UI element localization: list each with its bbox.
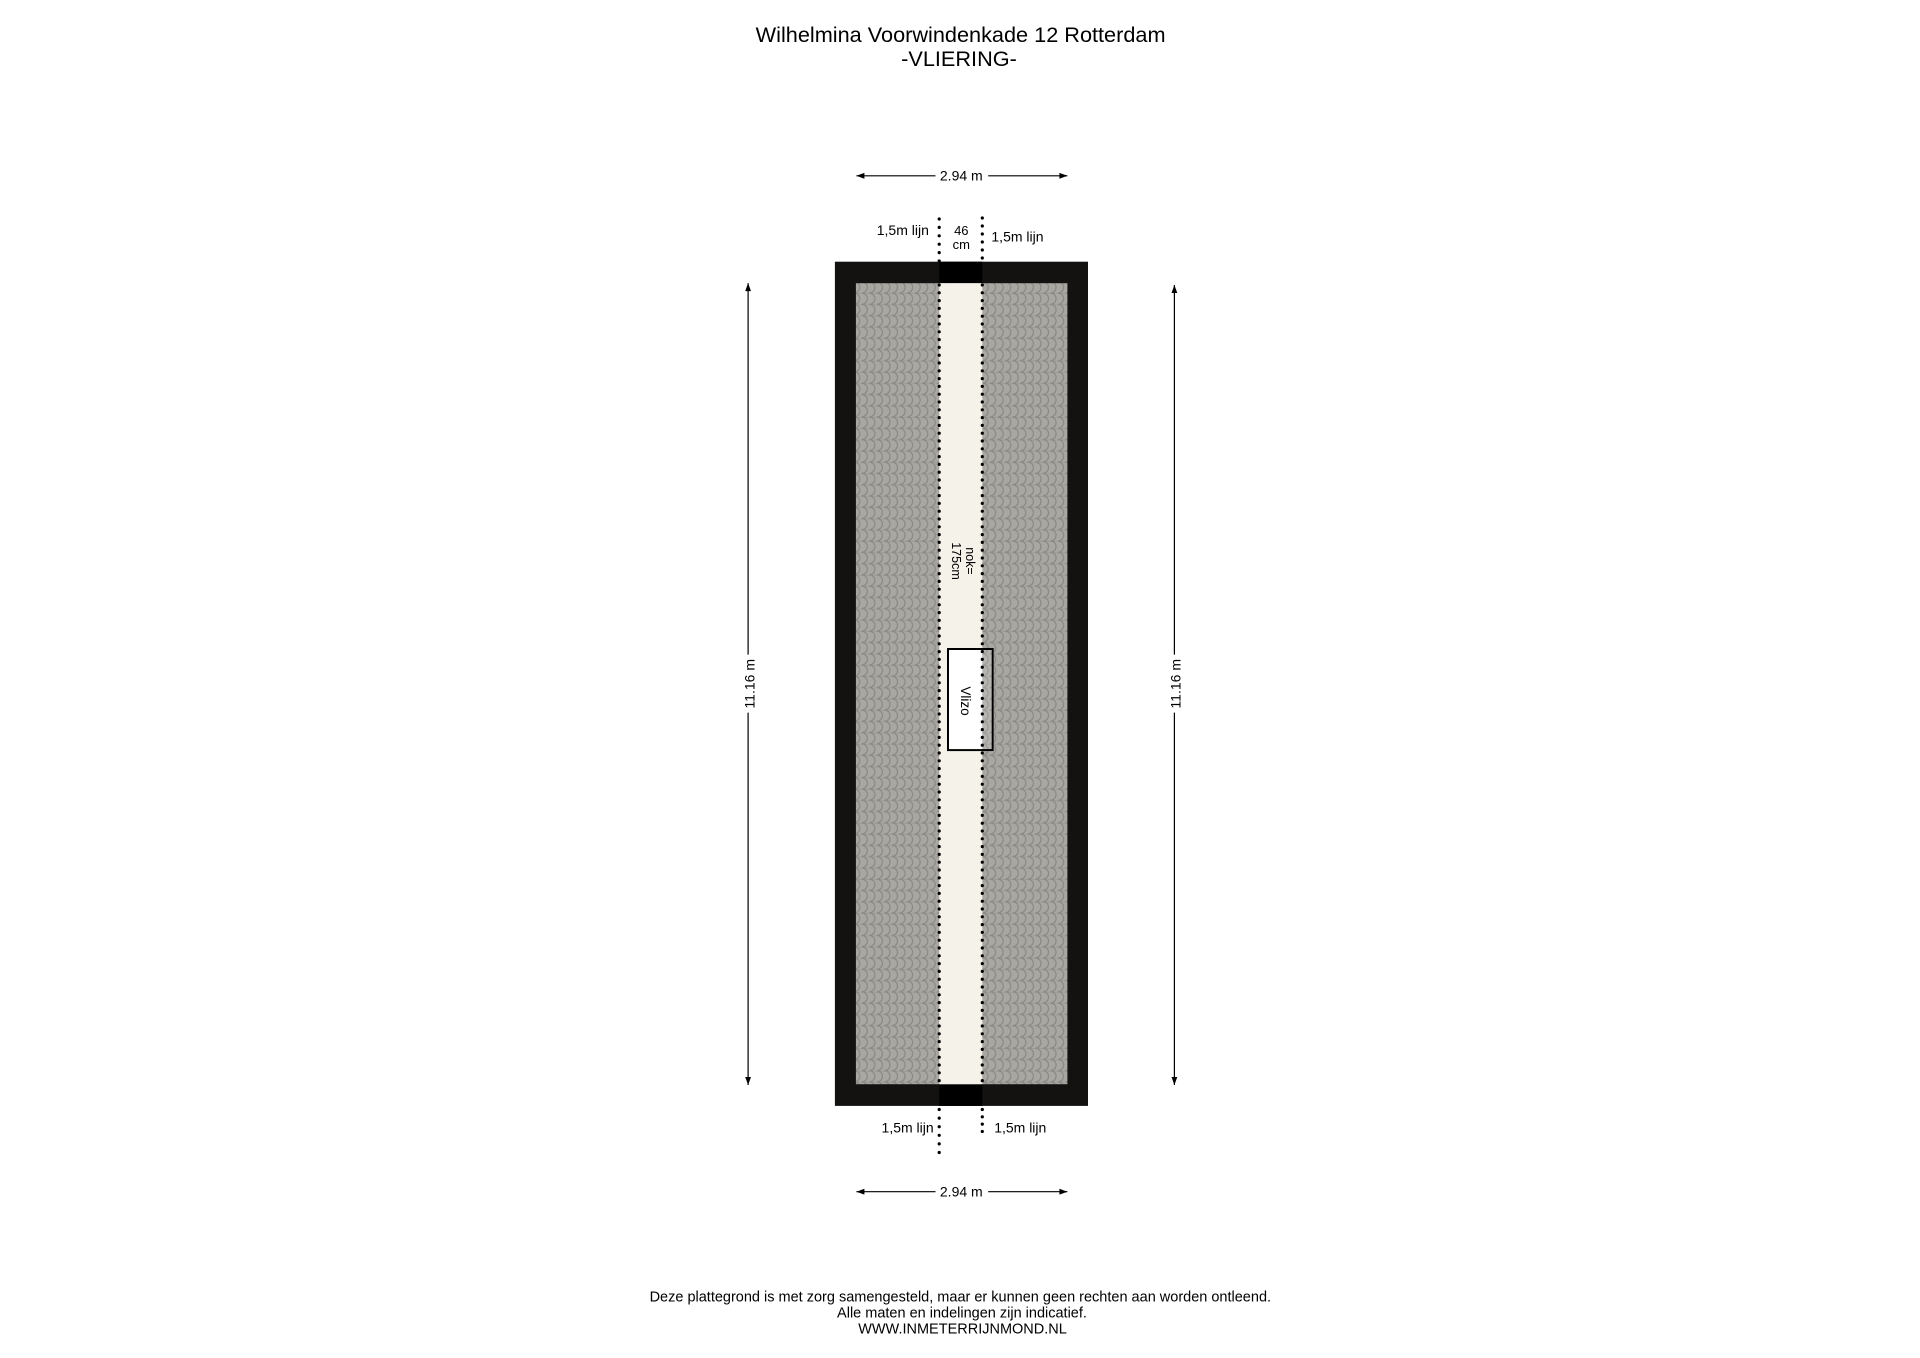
svg-text:-VLIERING-: -VLIERING- (901, 46, 1017, 71)
svg-text:Wilhelmina Voorwindenkade 12 R: Wilhelmina Voorwindenkade 12 Rotterdam (756, 22, 1166, 47)
svg-text:11.16 m: 11.16 m (741, 659, 757, 709)
svg-text:2.94 m: 2.94 m (940, 1184, 983, 1200)
svg-text:Deze plattegrond is met zorg s: Deze plattegrond is met zorg samengestel… (650, 1289, 1271, 1305)
svg-text:1,5m lijn: 1,5m lijn (994, 1120, 1046, 1136)
svg-text:Vlizo: Vlizo (958, 686, 973, 715)
svg-text:nok=: nok= (963, 547, 977, 574)
svg-text:1,5m lijn: 1,5m lijn (877, 222, 929, 238)
svg-text:1,5m lijn: 1,5m lijn (882, 1120, 934, 1136)
svg-text:cm: cm (953, 237, 970, 252)
svg-text:175cm: 175cm (949, 542, 963, 580)
svg-text:1,5m lijn: 1,5m lijn (991, 229, 1043, 245)
svg-text:11.16 m: 11.16 m (1168, 659, 1184, 709)
svg-text:2.94 m: 2.94 m (940, 168, 983, 184)
svg-text:Alle maten en indelingen zijn: Alle maten en indelingen zijn indicatief… (837, 1305, 1087, 1321)
svg-text:WWW.INMETERRIJNMOND.NL: WWW.INMETERRIJNMOND.NL (858, 1322, 1067, 1338)
